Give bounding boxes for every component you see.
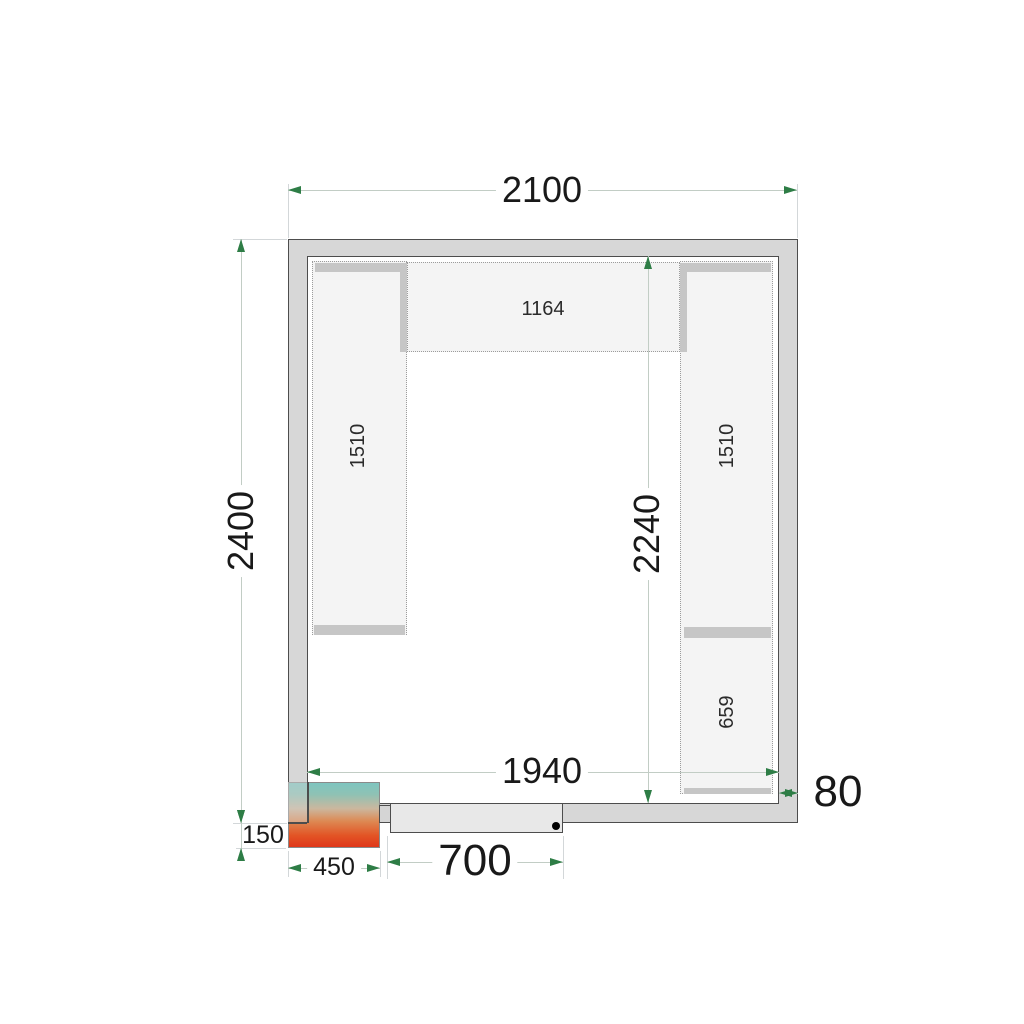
shelf-rail <box>684 627 771 638</box>
dim-arrowhead-icon <box>644 790 652 803</box>
dim-unit-protrusion-label: 150 <box>236 822 290 848</box>
dim-arrowhead-icon <box>237 239 245 252</box>
dim-door-width-label: 700 <box>432 838 517 884</box>
dim-arrowhead-icon <box>387 858 400 866</box>
shelf-right-dimension-label: 1510 <box>717 424 737 469</box>
dim-arrowhead-icon <box>307 768 320 776</box>
dim-arrowhead-icon <box>288 864 301 872</box>
shelf-right-lower-dimension-label: 659 <box>717 695 737 728</box>
wall-edge-line <box>288 822 307 824</box>
dim-total-width-label: 2100 <box>496 171 588 209</box>
wall-edge-line <box>307 782 309 823</box>
door-hinge-dot <box>552 822 560 830</box>
shelf-rail <box>680 263 687 352</box>
dim-wall-thickness-label: 80 <box>808 769 869 815</box>
dim-unit-width-label: 450 <box>307 854 361 880</box>
shelf-rail <box>684 263 771 272</box>
dim-arrowhead-icon <box>550 858 563 866</box>
dim-arrowhead-icon <box>784 186 797 194</box>
dim-inner-depth-label: 2240 <box>628 488 666 580</box>
shelf-rail <box>684 788 771 794</box>
wall-overlap-shade <box>288 782 307 823</box>
floor-plan-canvas: 1164 1510 1510 659 2100 2400 2240 1940 8… <box>0 0 1024 1024</box>
shelf-rail <box>315 263 404 272</box>
shelf-rail <box>314 625 405 635</box>
shelf-top-dimension-label: 1164 <box>521 299 564 319</box>
shelf-left-dimension-label: 1510 <box>348 424 368 469</box>
dim-arrowhead-icon <box>766 768 779 776</box>
dim-total-depth-label: 2400 <box>222 485 260 577</box>
door-leaf <box>390 803 563 833</box>
dim-arrowhead-icon <box>288 186 301 194</box>
dim-arrowhead-icon <box>367 864 380 872</box>
dim-arrowhead-icon <box>237 848 245 861</box>
dim-arrowhead-icon <box>785 789 798 797</box>
shelf-rail <box>400 263 407 352</box>
dim-arrowhead-icon <box>644 256 652 269</box>
extension-line <box>797 184 798 238</box>
dim-inner-width-label: 1940 <box>496 752 588 790</box>
